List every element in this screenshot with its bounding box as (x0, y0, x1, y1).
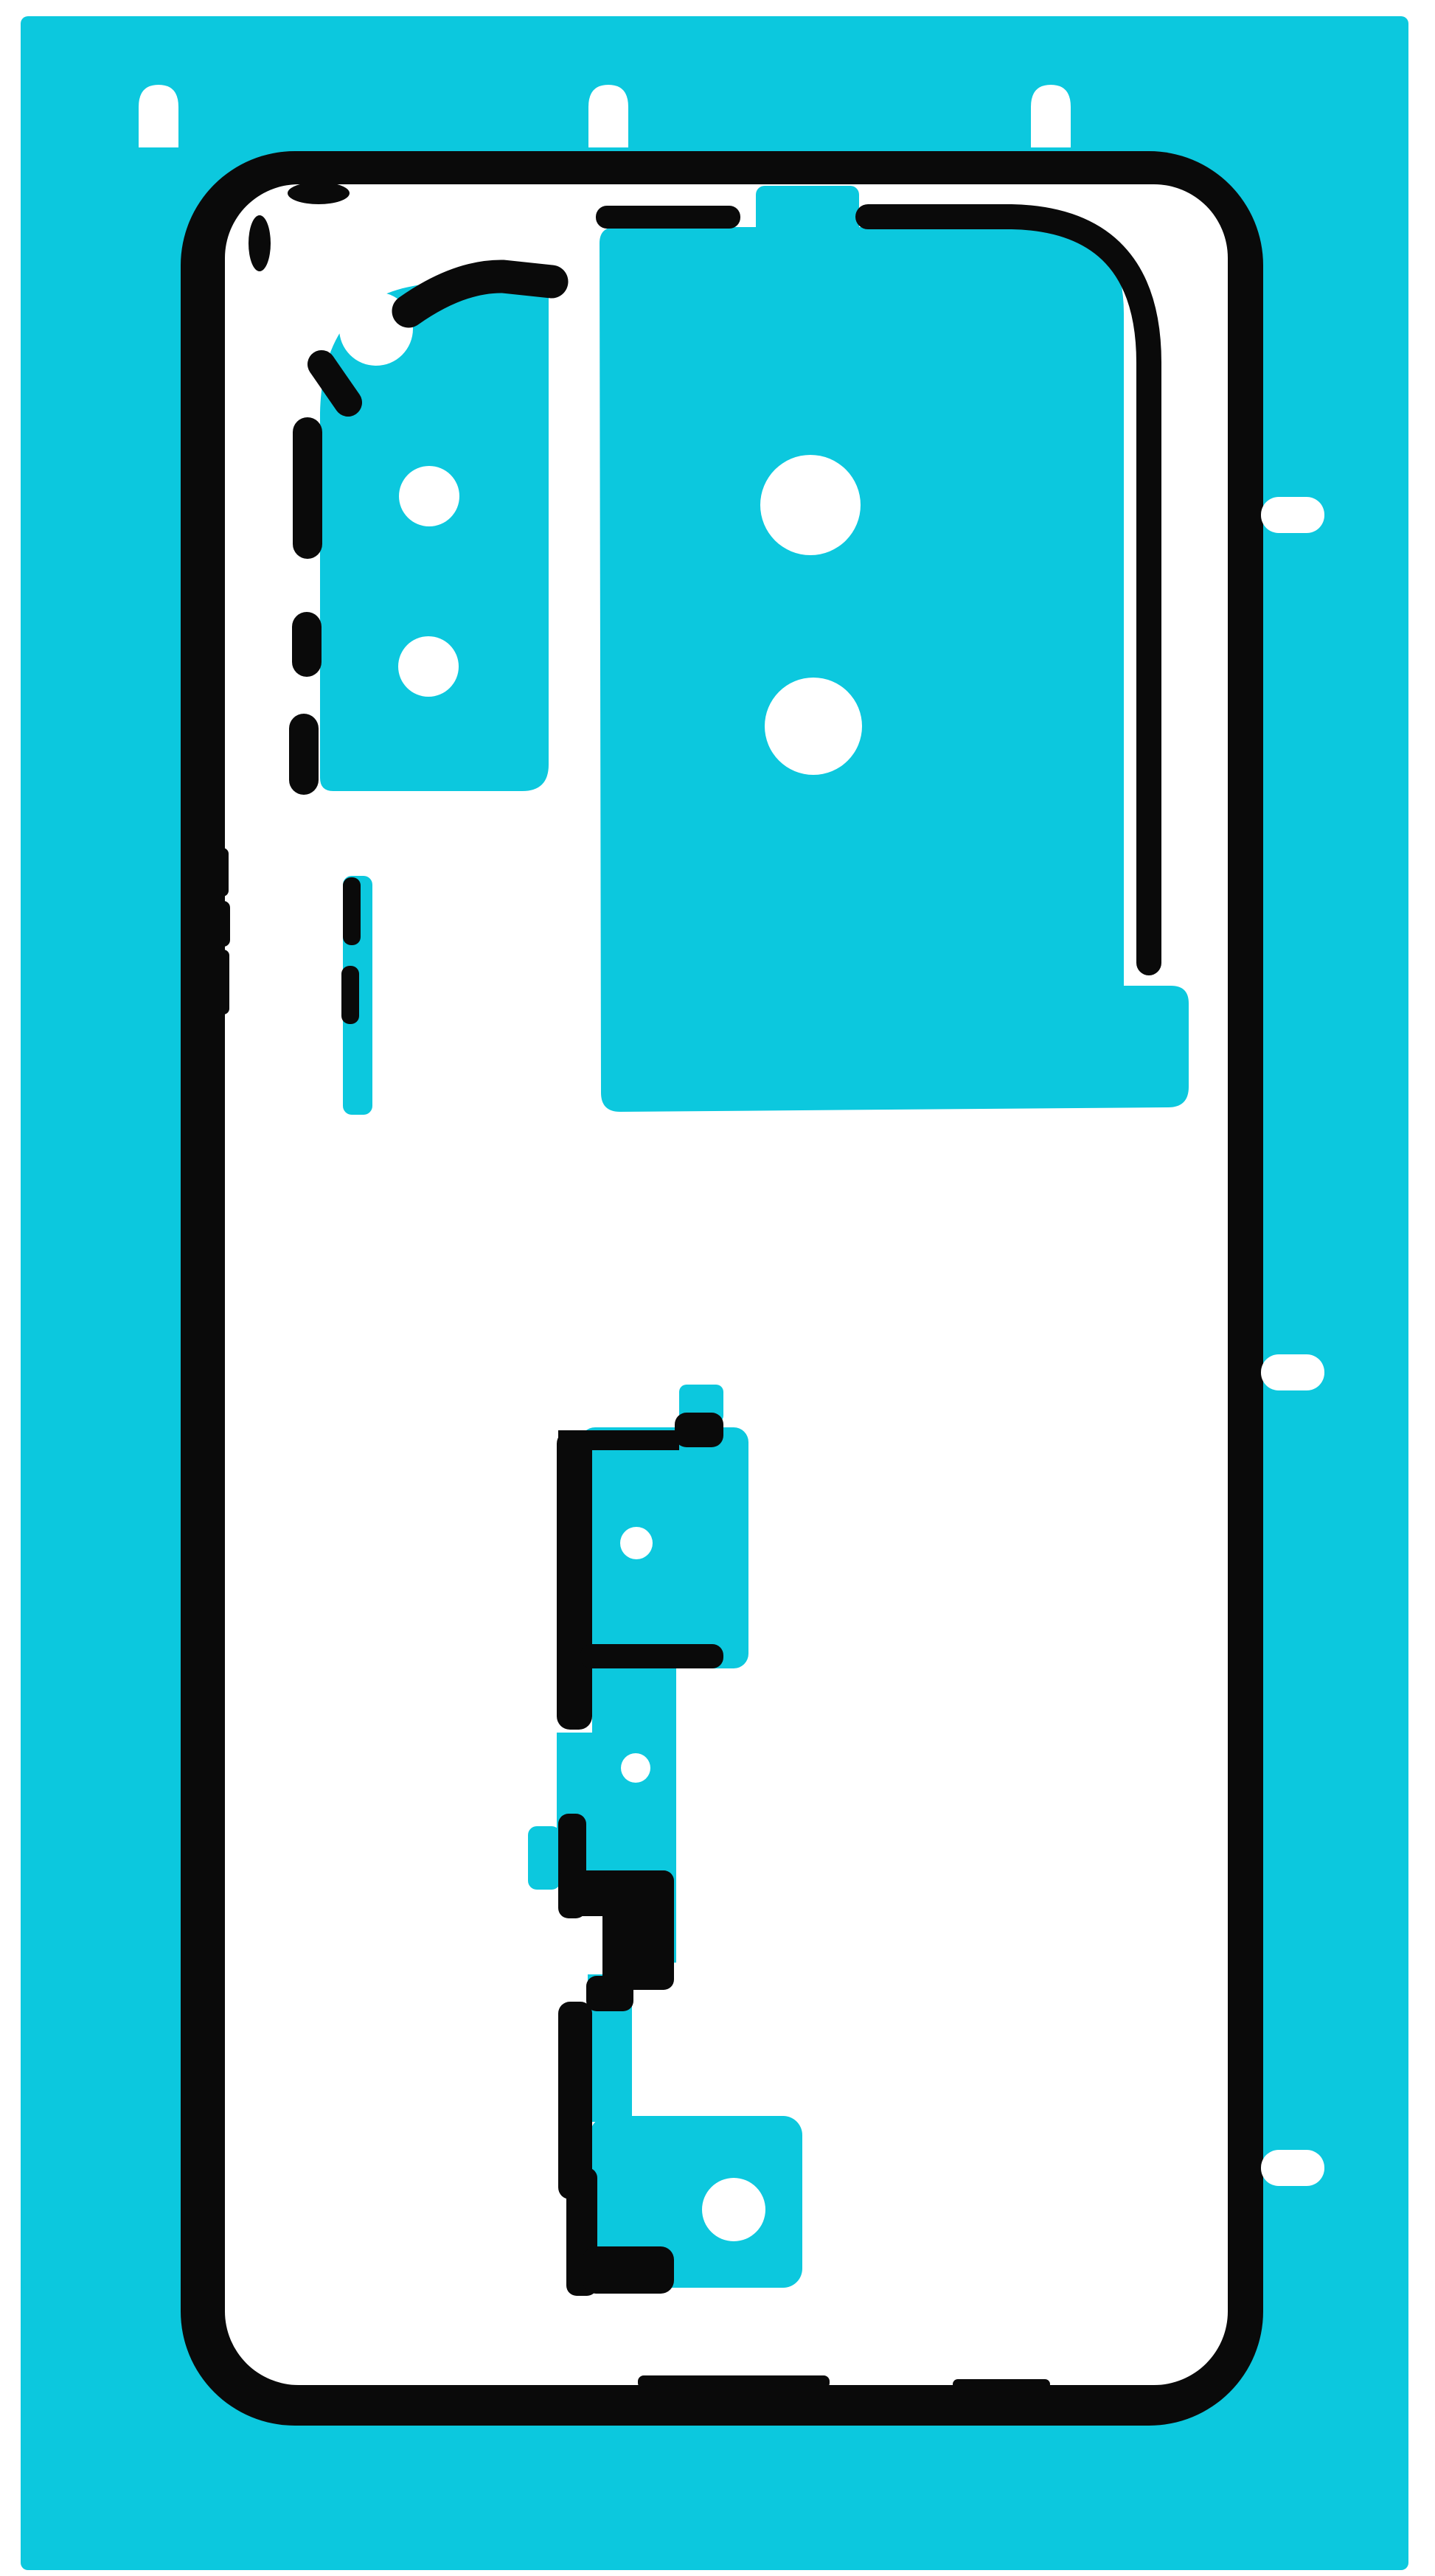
lens-hole (765, 678, 862, 775)
cut (602, 1870, 674, 1990)
pad-strip (592, 1668, 676, 1738)
dash (341, 966, 359, 1024)
bottom-edge-bump (638, 2375, 830, 2389)
pull-tab (1261, 497, 1324, 533)
left-edge-bump (216, 848, 229, 897)
pad-left-tab (528, 1826, 560, 1890)
dash (343, 877, 361, 945)
lens-zone-pad (600, 227, 1189, 1112)
camera-hole (398, 636, 459, 697)
registration-tab (588, 85, 628, 147)
cut (586, 1976, 633, 2011)
lump (288, 182, 350, 204)
registration-tab (1031, 85, 1071, 147)
camera-zone (304, 276, 552, 791)
assembly-hole (621, 1753, 650, 1783)
adhesive-sheet-graphic (0, 0, 1435, 2576)
registration-tab (139, 85, 178, 147)
main-lens-zone (596, 186, 1189, 1112)
pull-tab (1261, 2150, 1324, 2186)
assembly-hole (702, 2178, 765, 2241)
lens-hole (760, 455, 861, 555)
left-edge-bump (218, 950, 229, 1014)
bottom-edge-bump (953, 2379, 1050, 2389)
cut (557, 1430, 592, 1730)
pull-tab (1261, 1354, 1324, 1390)
cut (580, 1644, 723, 1668)
assembly-hole (620, 1527, 653, 1559)
side-rail-strip (341, 876, 372, 1115)
lens-zone-top-cut-left (596, 206, 740, 229)
cut (583, 2246, 674, 2294)
pad-upper-panel (580, 1427, 748, 1668)
cut (675, 1413, 723, 1447)
camera-hole (399, 466, 459, 526)
lump (249, 215, 271, 271)
left-edge-bump (216, 901, 230, 947)
product-image (0, 0, 1435, 2576)
